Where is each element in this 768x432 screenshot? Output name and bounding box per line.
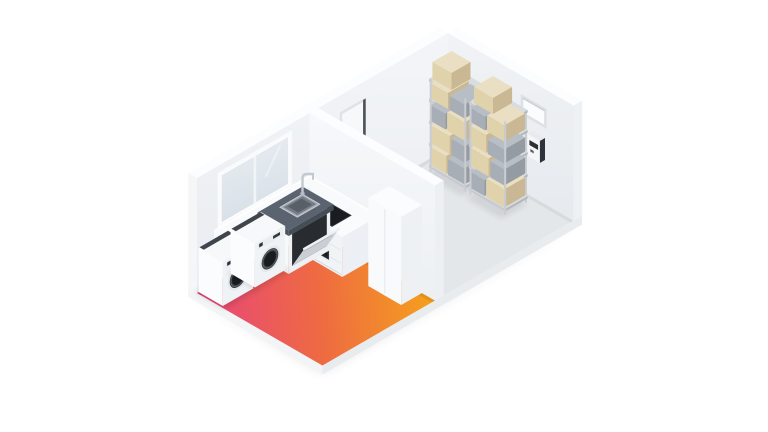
tall-cabinet <box>368 186 422 305</box>
isometric-room-scene <box>0 0 768 432</box>
illustration-stage <box>0 0 768 432</box>
